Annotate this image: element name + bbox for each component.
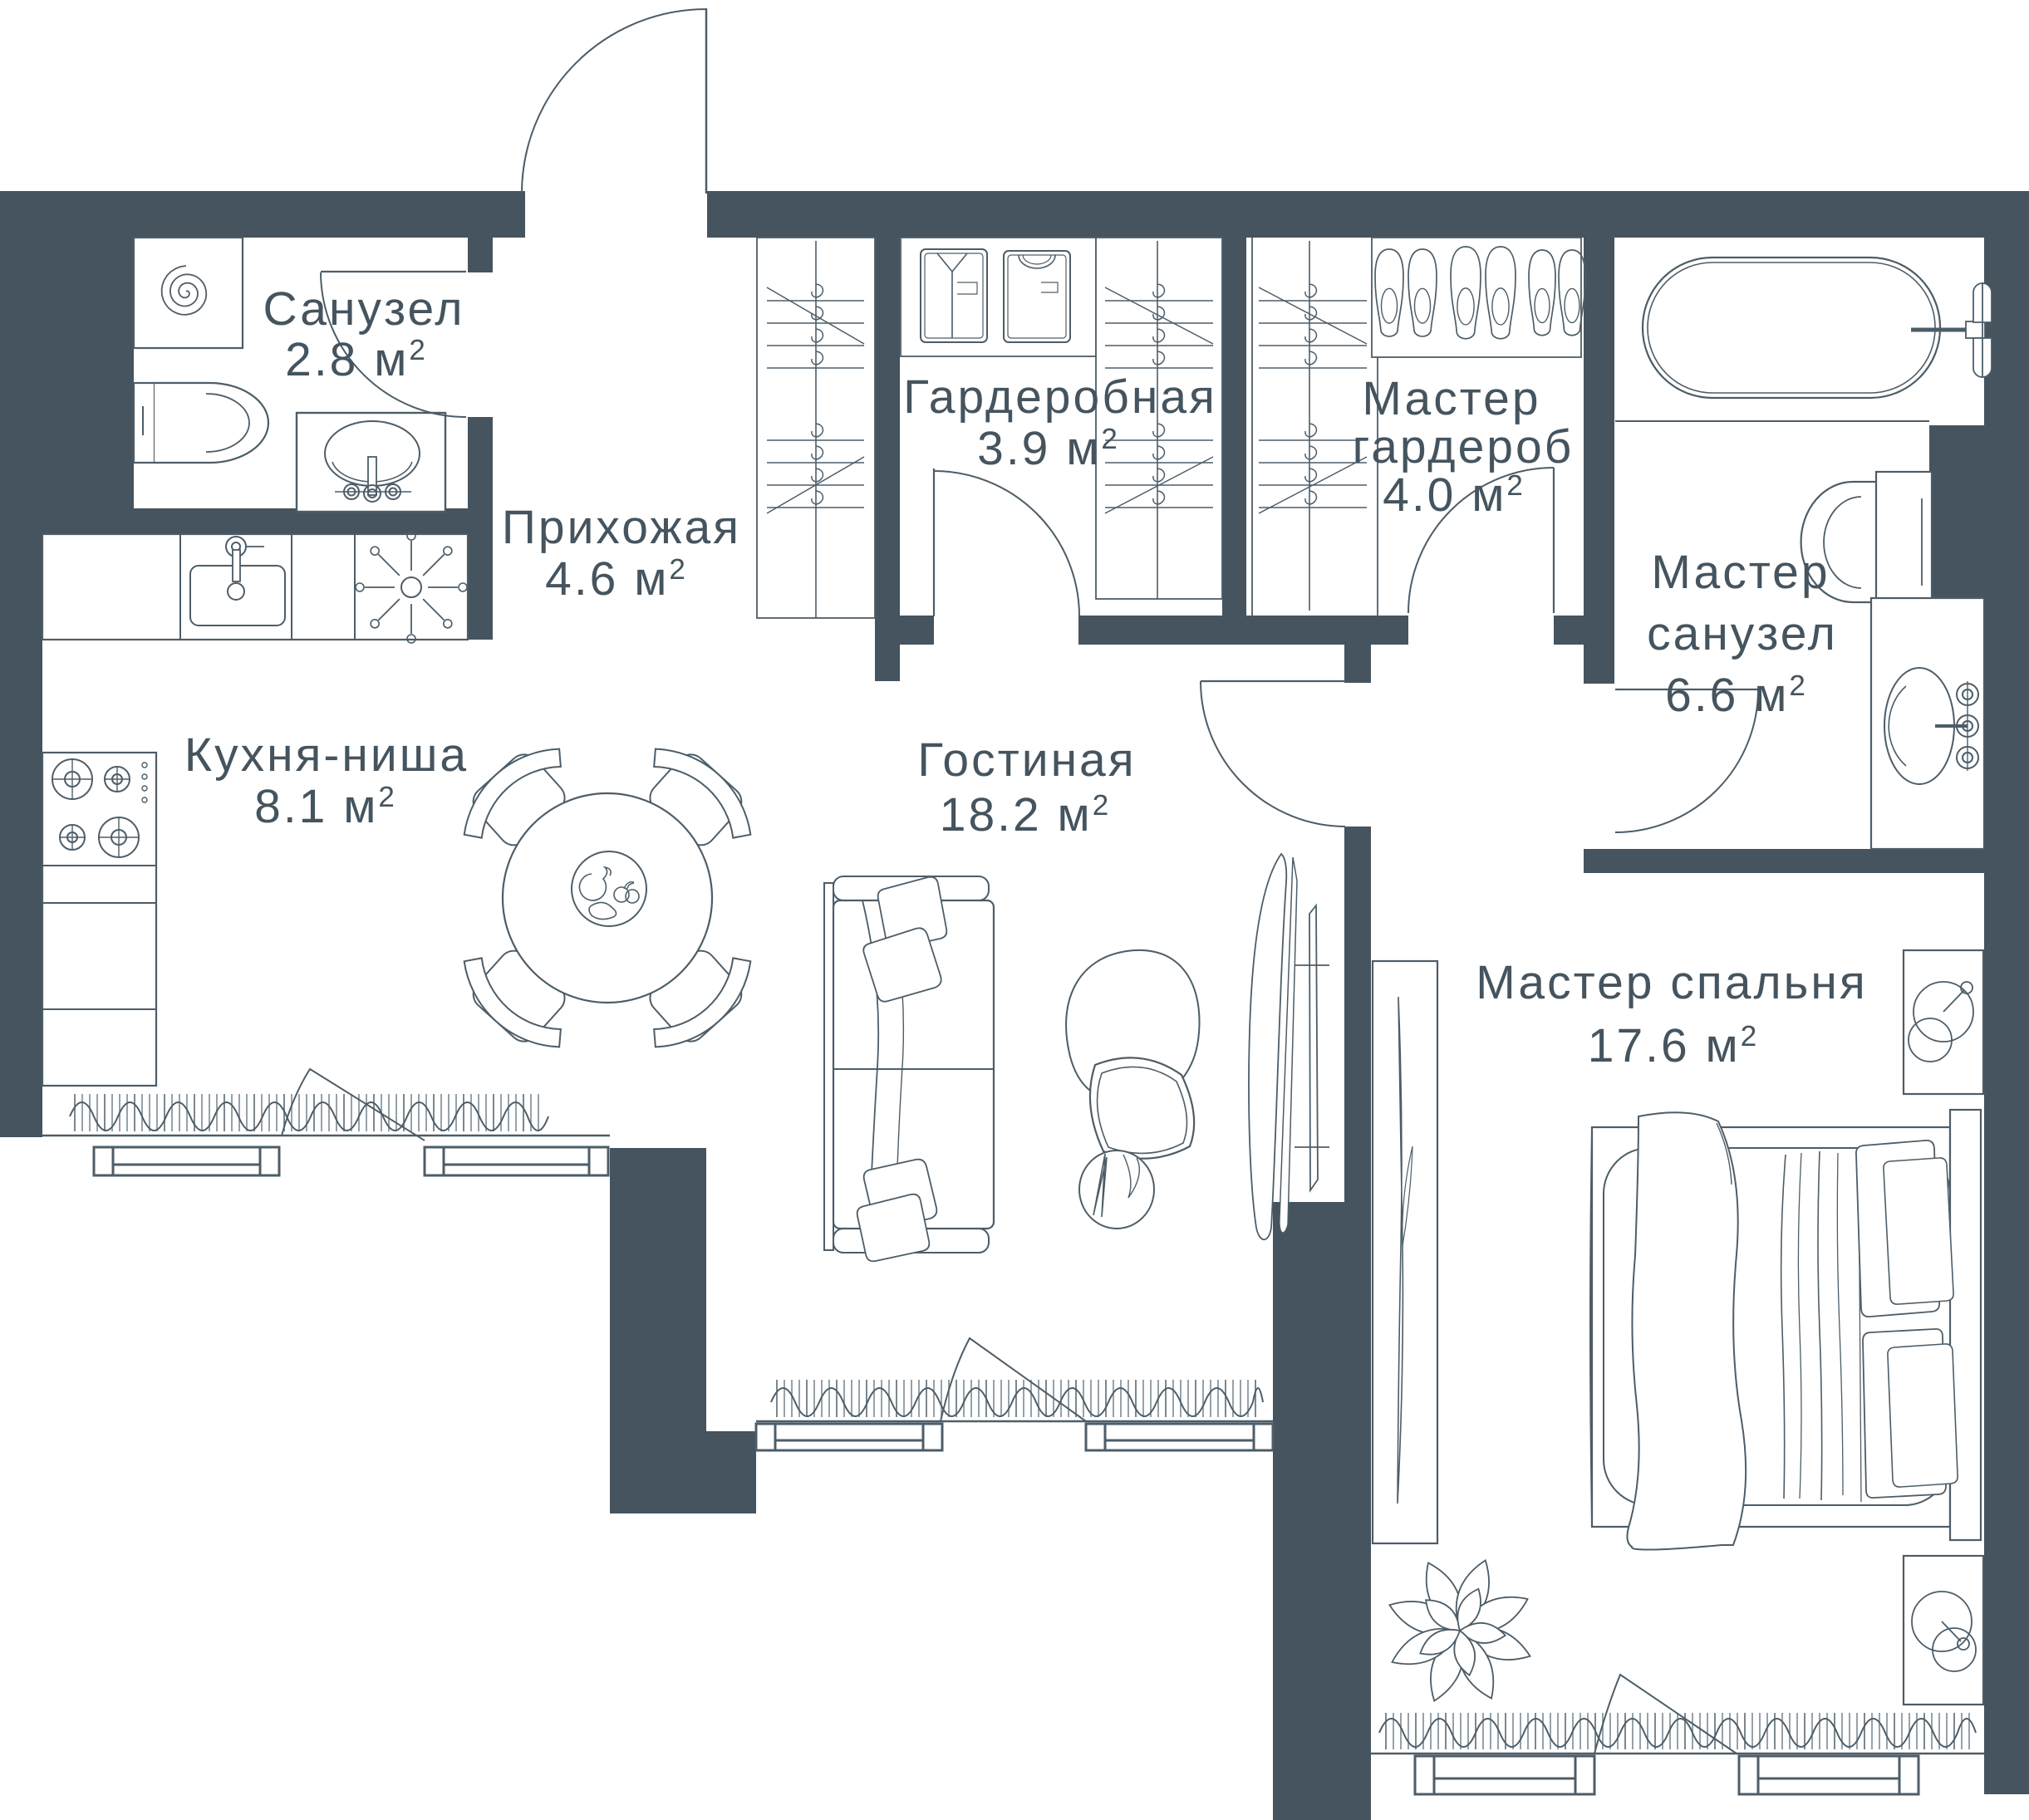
svg-text:Гардеробная: Гардеробная	[903, 370, 1217, 424]
svg-text:Санузел: Санузел	[263, 282, 464, 336]
svg-text:Прихожая: Прихожая	[502, 501, 741, 554]
svg-text:гардероб: гардероб	[1353, 420, 1575, 473]
svg-text:17.6 м2: 17.6 м2	[1588, 1019, 1759, 1072]
svg-text:18.2 м2: 18.2 м2	[940, 788, 1111, 841]
svg-text:Мастер: Мастер	[1651, 546, 1830, 599]
svg-text:6.6 м2: 6.6 м2	[1665, 669, 1808, 722]
svg-text:Гостиная: Гостиная	[917, 733, 1136, 787]
svg-text:Мастер: Мастер	[1362, 372, 1540, 425]
svg-text:3.9 м2: 3.9 м2	[977, 422, 1120, 475]
svg-text:8.1 м2: 8.1 м2	[254, 780, 397, 833]
svg-text:4.0 м2: 4.0 м2	[1383, 468, 1525, 522]
svg-text:Мастер спальня: Мастер спальня	[1476, 956, 1867, 1009]
svg-text:4.6 м2: 4.6 м2	[545, 552, 688, 606]
svg-text:2.8 м2: 2.8 м2	[285, 333, 428, 386]
svg-text:Кухня-ниша: Кухня-ниша	[184, 728, 469, 782]
svg-text:санузел: санузел	[1647, 607, 1838, 660]
